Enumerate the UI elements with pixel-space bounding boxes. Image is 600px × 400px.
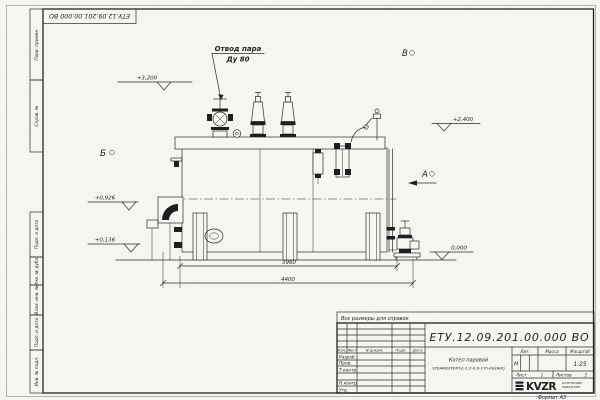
dimension-value: 4400 xyxy=(281,277,295,283)
drawing-sheet: ЕТУ.12.09.201.00.000 ВО Перв. примен. Сп… xyxy=(0,0,600,400)
dimension-value: 3960 xyxy=(282,260,296,266)
document-number: ЕТУ.12.09.201.00.000 ВО xyxy=(430,331,590,344)
format-label: Формат А3 xyxy=(538,395,566,400)
elevation-value: +0,136 xyxy=(95,238,116,244)
corner-stamp-code: ЕТУ.12.09.201.00.000 ВО xyxy=(49,12,130,19)
sheet-value: 1 xyxy=(541,373,544,378)
change-header: Дата xyxy=(412,347,424,352)
change-header: N докум. xyxy=(366,347,384,352)
view-letter: Б xyxy=(100,149,106,159)
downcomer-pipe xyxy=(387,149,398,252)
elevation-marker-3200: +3,200 xyxy=(118,76,192,91)
corner-stamp: ЕТУ.12.09.201.00.000 ВО xyxy=(43,9,136,24)
callout-text: Отвод пара xyxy=(215,45,262,53)
logo-text: KVZR xyxy=(526,381,556,393)
view-letter: В xyxy=(402,49,408,59)
feed-pump xyxy=(394,221,420,260)
elevation-value: 0,000 xyxy=(451,246,467,252)
lit-label: Лит. xyxy=(519,349,530,354)
role-label: Т.контр. xyxy=(339,367,358,373)
change-header: Лист xyxy=(346,347,357,352)
view-label-b: Б xyxy=(100,149,114,159)
logo-caption: ЗАВОД РЭП xyxy=(562,385,580,389)
product-name: Котел паровой xyxy=(449,358,489,364)
safety-valve xyxy=(250,93,266,138)
lit-value: М xyxy=(514,362,519,368)
safety-valve xyxy=(280,93,296,138)
margin-label: Инв. № подл. xyxy=(34,357,40,387)
margin-label: Справ. № xyxy=(34,105,40,126)
elevation-marker-0926: +0,926 xyxy=(88,196,138,211)
sheets-value: 2 xyxy=(585,373,588,378)
elevation-marker-0000: 0,000 xyxy=(430,246,473,260)
elevation-marker-2400: +2,400 xyxy=(432,117,480,131)
sheets-label: Листов xyxy=(555,373,572,378)
kvzr-logo: KVZR КОТЕЛЬНЫЙ ЗАВОД РЭП xyxy=(516,380,582,393)
role-label: Разраб. xyxy=(339,354,356,360)
margin-label-boxes: Перв. примен. Справ. № Подп. и дата Инв.… xyxy=(30,9,43,393)
mass-label: Масса xyxy=(545,349,559,354)
margin-label: Подп. и дата xyxy=(34,220,40,250)
elevation-value: +2,400 xyxy=(453,117,474,123)
margin-label: Инв. № дубл. xyxy=(34,256,40,285)
elevation-value: +0,926 xyxy=(95,196,116,202)
role-label: Утв. xyxy=(339,387,348,393)
sheet-label: Лист xyxy=(515,373,527,378)
view-label-v: В xyxy=(402,49,414,59)
margin-label: Перв. примен. xyxy=(34,28,40,60)
margin-label: Взам. инв. № xyxy=(34,285,40,315)
note-text: Все размеры для справок xyxy=(341,316,409,322)
steam-outlet-valve xyxy=(207,96,233,137)
boiler-side-view xyxy=(116,93,456,261)
change-header: Подп. xyxy=(395,347,407,352)
scale-value: 1:25 xyxy=(573,362,586,368)
title-block: Изм. Лист N докум. Подп. Дата Разраб. Пр… xyxy=(337,323,594,400)
callout-text: Ду 80 xyxy=(226,56,250,64)
margin-label: Подп. и дата xyxy=(34,318,40,348)
view-letter: А xyxy=(421,170,428,180)
reference-note: Все размеры для справок xyxy=(337,312,594,323)
role-label: Н.контр. xyxy=(339,381,358,387)
burner-unit xyxy=(147,197,183,260)
boiler-general-view-drawing: ЕТУ.12.09.201.00.000 ВО Перв. примен. Сп… xyxy=(0,0,600,400)
elevation-value: +3,200 xyxy=(137,76,158,82)
steam-outlet-callout: Отвод пара Ду 80 xyxy=(212,45,264,100)
product-model: STEAMEXPERT-E-1,2-0,9-170-КБ(ЖК) xyxy=(432,366,505,371)
left-nozzle xyxy=(171,158,182,167)
small-dome-valve xyxy=(233,130,241,138)
view-label-a: А xyxy=(408,170,436,186)
change-header: Изм. xyxy=(338,347,347,352)
role-label: Пров. xyxy=(339,361,352,367)
elevation-marker-0136: +0,136 xyxy=(88,238,140,253)
steam-drum-header xyxy=(175,137,385,149)
scale-label: Масштаб xyxy=(570,349,590,354)
